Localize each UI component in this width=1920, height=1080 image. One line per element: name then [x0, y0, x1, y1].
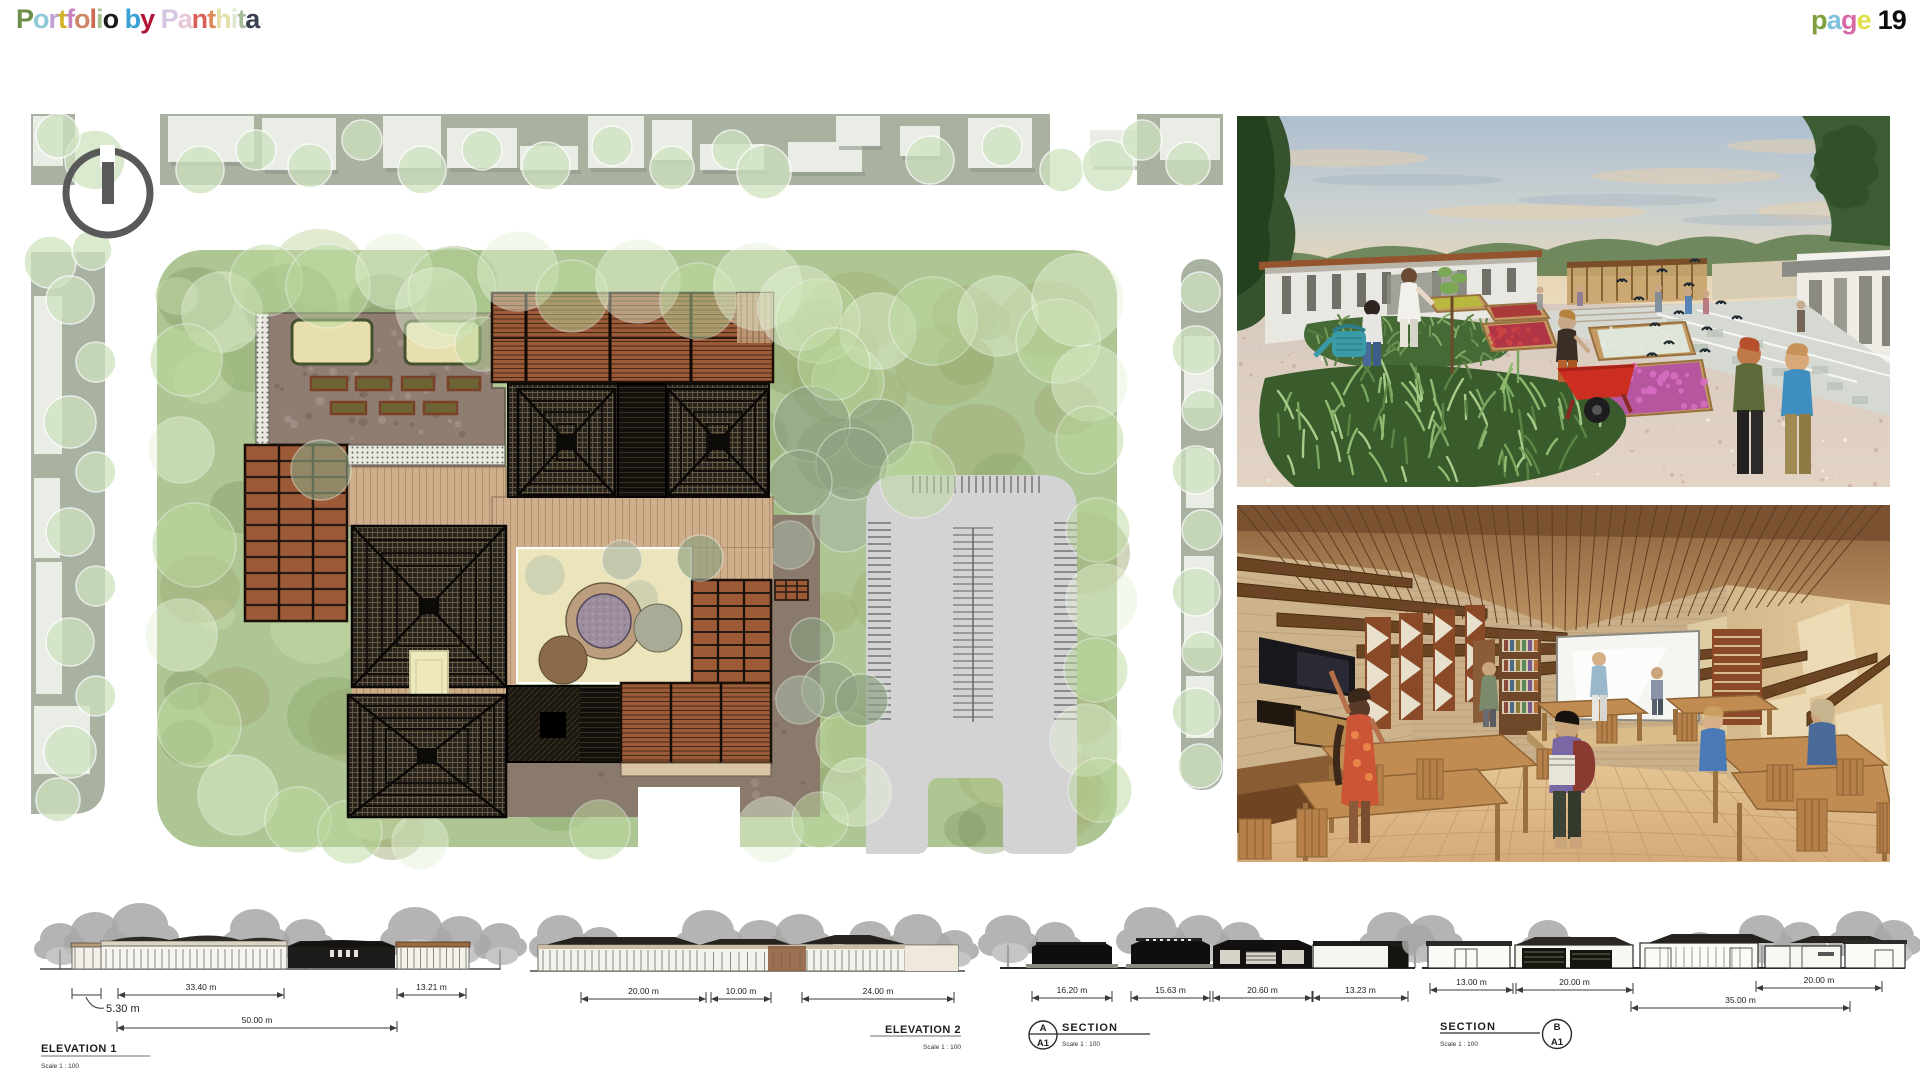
svg-text:A1: A1: [1037, 1038, 1050, 1049]
svg-text:SECTION: SECTION: [1062, 1022, 1118, 1034]
svg-text:ELEVATION 1: ELEVATION 1: [41, 1043, 117, 1055]
svg-text:13.21 m: 13.21 m: [416, 982, 447, 992]
svg-text:24.00 m: 24.00 m: [863, 986, 894, 996]
svg-text:10.00 m: 10.00 m: [726, 986, 757, 996]
svg-text:ELEVATION 2: ELEVATION 2: [885, 1024, 961, 1036]
svg-text:B: B: [1554, 1022, 1561, 1033]
svg-text:13.00 m: 13.00 m: [1456, 977, 1487, 987]
svg-text:A1: A1: [1551, 1037, 1564, 1048]
svg-text:Scale 1 : 100: Scale 1 : 100: [1440, 1041, 1478, 1048]
svg-text:20.00 m: 20.00 m: [628, 986, 659, 996]
svg-text:35.00 m: 35.00 m: [1725, 995, 1756, 1005]
svg-text:13.23 m: 13.23 m: [1345, 985, 1376, 995]
svg-text:15.63 m: 15.63 m: [1155, 985, 1186, 995]
svg-text:Scale 1 : 100: Scale 1 : 100: [1062, 1041, 1100, 1048]
svg-text:A: A: [1040, 1023, 1047, 1034]
svg-text:20.00 m: 20.00 m: [1559, 977, 1590, 987]
svg-text:50.00 m: 50.00 m: [242, 1015, 273, 1025]
svg-text:20.00 m: 20.00 m: [1804, 975, 1835, 985]
svg-text:16.20 m: 16.20 m: [1057, 985, 1088, 995]
svg-text:20.60 m: 20.60 m: [1247, 985, 1278, 995]
svg-text:33.40 m: 33.40 m: [186, 982, 217, 992]
svg-text:5.30 m: 5.30 m: [106, 1003, 140, 1015]
svg-text:Scale 1 : 100: Scale 1 : 100: [41, 1063, 79, 1070]
svg-text:Scale 1 : 100: Scale 1 : 100: [923, 1044, 961, 1051]
svg-text:SECTION: SECTION: [1440, 1021, 1496, 1033]
